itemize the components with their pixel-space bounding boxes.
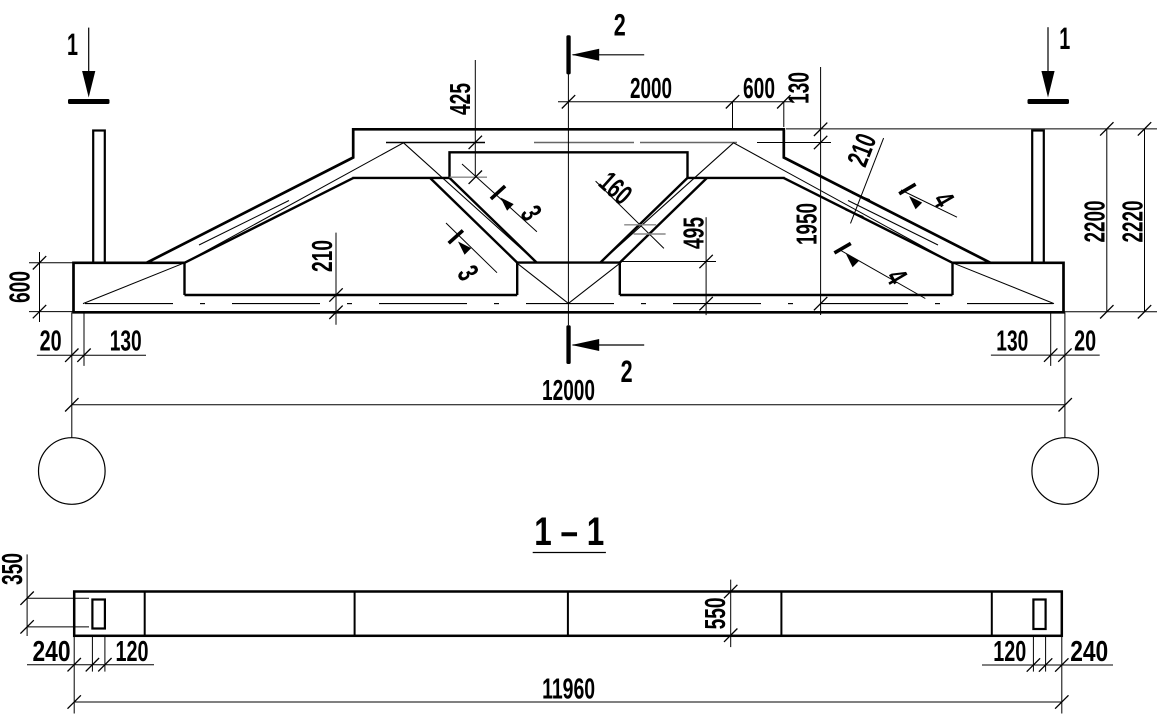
svg-text:2220: 2220 [1118,201,1150,243]
svg-text:210: 210 [307,240,339,272]
svg-text:2200: 2200 [1080,201,1112,243]
svg-text:495: 495 [678,217,710,249]
svg-text:11960: 11960 [542,673,595,705]
svg-text:240: 240 [33,636,71,668]
svg-text:1950: 1950 [791,203,823,245]
svg-text:130: 130 [110,326,142,358]
svg-text:550: 550 [700,597,732,629]
svg-text:20: 20 [1074,326,1096,358]
svg-text:350: 350 [0,553,29,585]
svg-text:425: 425 [445,83,477,115]
svg-text:1: 1 [67,27,78,62]
svg-text:2000: 2000 [630,73,672,105]
svg-text:12000: 12000 [542,375,595,407]
svg-text:1 – 1: 1 – 1 [534,510,604,554]
svg-text:2: 2 [621,354,633,389]
svg-text:130: 130 [996,326,1028,358]
svg-text:240: 240 [1070,636,1108,668]
svg-text:130: 130 [784,72,816,104]
svg-text:2: 2 [614,8,626,43]
svg-text:120: 120 [116,636,149,668]
svg-text:120: 120 [993,636,1026,668]
svg-text:600: 600 [5,271,37,303]
svg-text:600: 600 [743,73,775,105]
svg-text:20: 20 [40,326,62,358]
svg-text:1: 1 [1059,21,1070,56]
